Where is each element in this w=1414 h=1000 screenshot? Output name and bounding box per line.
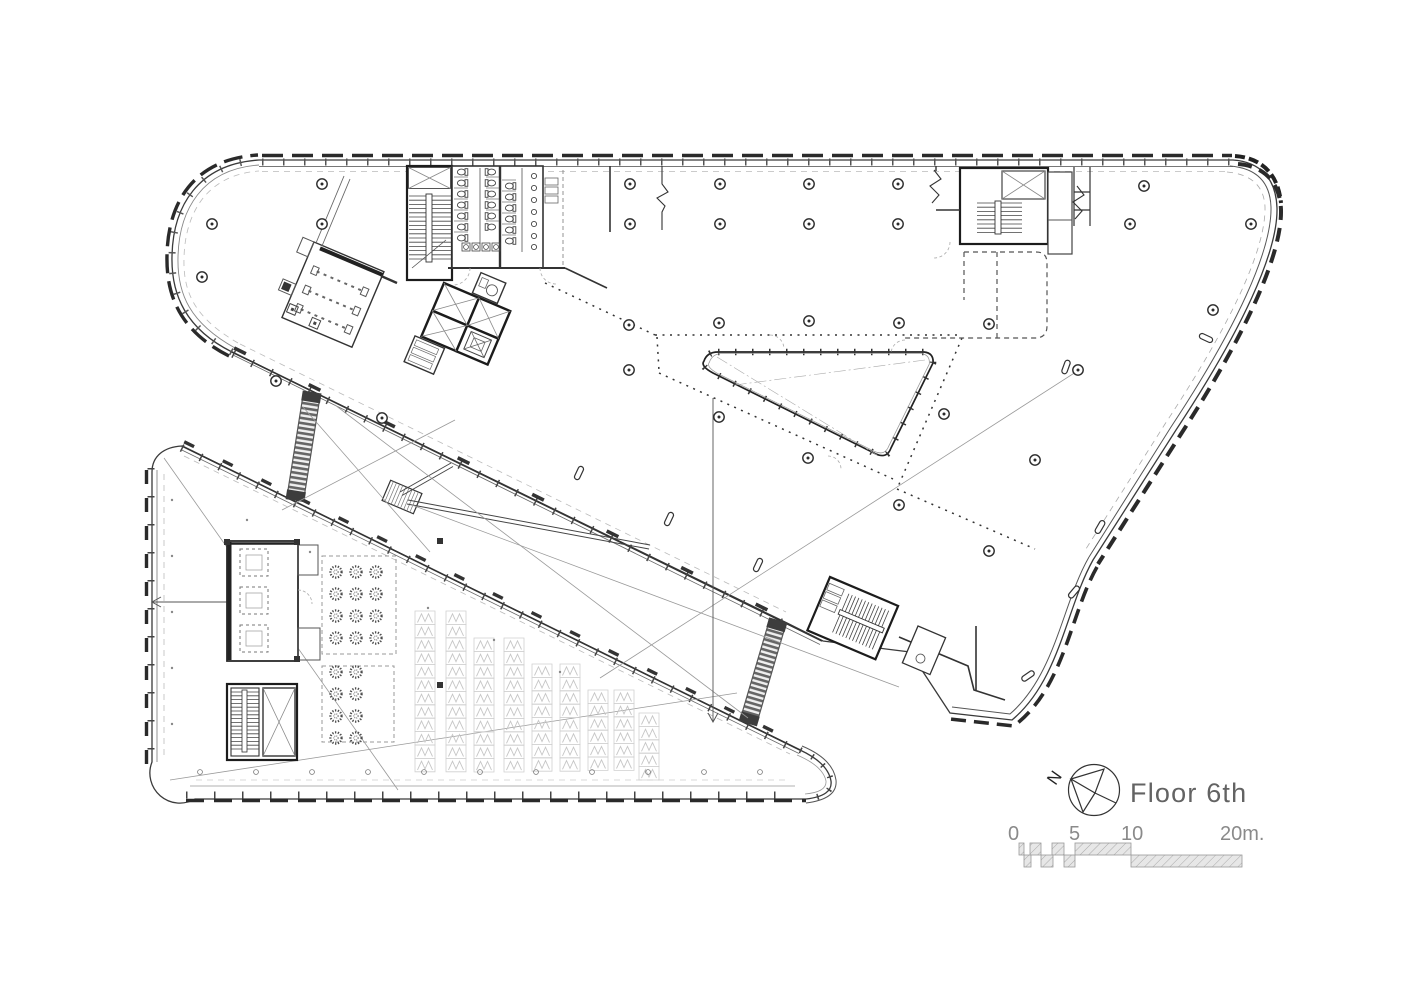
svg-text:20m.: 20m. (1220, 823, 1264, 845)
svg-text:Floor 6th: Floor 6th (1130, 778, 1247, 808)
svg-text:0: 0 (1008, 823, 1019, 845)
svg-text:5: 5 (1069, 823, 1080, 845)
svg-text:10: 10 (1121, 823, 1143, 845)
